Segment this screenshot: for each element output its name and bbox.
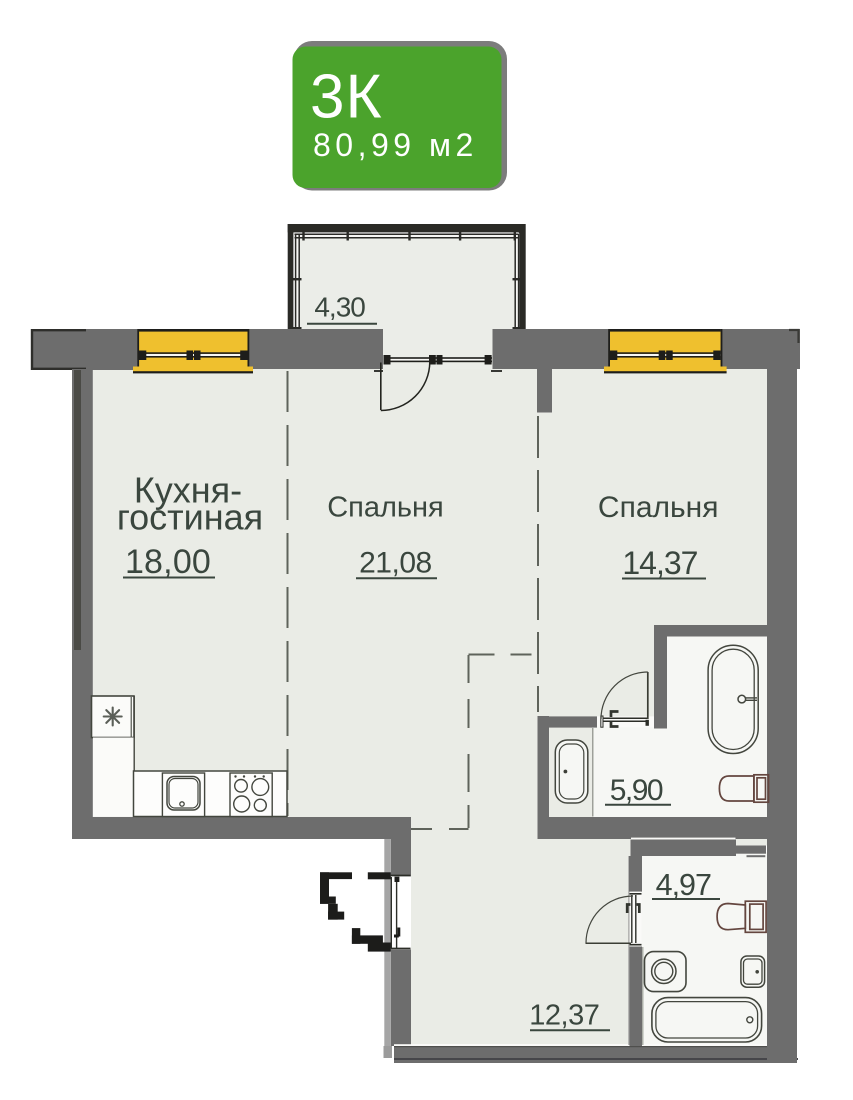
svg-text:Спальня: Спальня [598, 491, 719, 524]
svg-text:5,90: 5,90 [610, 774, 663, 807]
svg-text:4,97: 4,97 [656, 868, 711, 902]
svg-text:гостиная: гостиная [117, 497, 263, 538]
svg-text:12,37: 12,37 [529, 1000, 599, 1032]
svg-text:Спальня: Спальня [327, 492, 444, 524]
svg-text:4,30: 4,30 [314, 291, 365, 322]
svg-text:80,99 м2: 80,99 м2 [313, 127, 478, 163]
svg-text:3К: 3К [310, 63, 383, 132]
svg-text:21,08: 21,08 [359, 547, 432, 580]
svg-text:14,37: 14,37 [622, 545, 697, 581]
svg-text:18,00: 18,00 [125, 543, 211, 581]
